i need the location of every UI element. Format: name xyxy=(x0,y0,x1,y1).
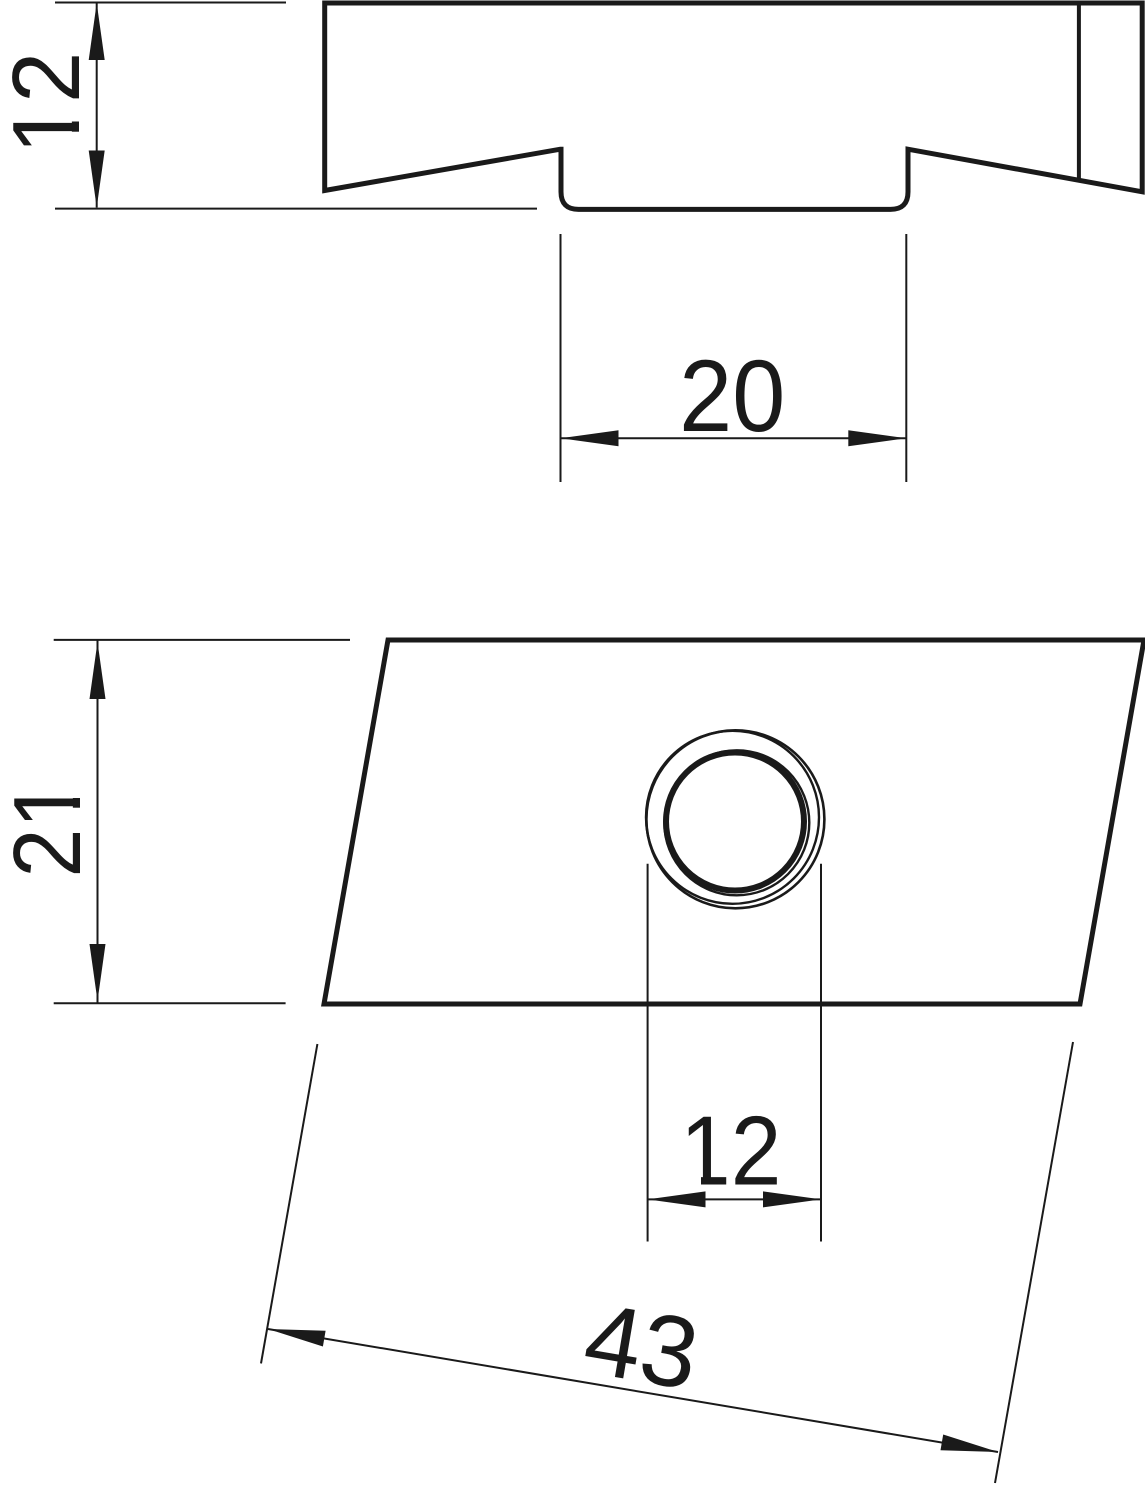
svg-text:12: 12 xyxy=(0,52,100,154)
svg-text:12: 12 xyxy=(680,1096,781,1206)
svg-text:43: 43 xyxy=(577,1282,706,1411)
svg-text:20: 20 xyxy=(679,339,785,453)
svg-text:21: 21 xyxy=(0,779,101,877)
